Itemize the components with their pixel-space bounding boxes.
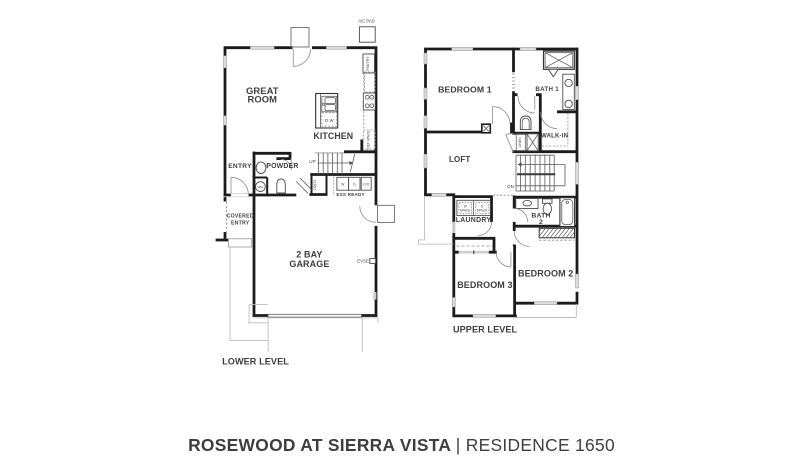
svg-text:LINEN: LINEN [518, 137, 522, 148]
svg-text:UPPER LEVEL: UPPER LEVEL [453, 325, 518, 335]
svg-text:SPACE: SPACE [460, 209, 471, 213]
svg-text:ENTRY: ENTRY [228, 163, 252, 170]
svg-text:D.W.: D.W. [325, 118, 334, 123]
svg-text:REF SPACE: REF SPACE [366, 131, 370, 149]
svg-text:DN: DN [507, 184, 514, 189]
svg-text:PANTRY: PANTRY [366, 56, 370, 71]
svg-text:BEDROOM 2: BEDROOM 2 [518, 268, 573, 278]
svg-text:SPACE: SPACE [477, 209, 488, 213]
svg-text:WALK-IN: WALK-IN [541, 133, 568, 139]
svg-text:A/C PAD: A/C PAD [358, 18, 374, 23]
svg-text:ROSEWOOD AT SIERRA VISTA | RES: ROSEWOOD AT SIERRA VISTA | RESIDENCE 165… [188, 435, 615, 455]
svg-text:W/H: W/H [257, 185, 263, 189]
svg-text:GARAGE: GARAGE [289, 259, 329, 269]
svg-text:COATS: COATS [313, 180, 317, 191]
svg-text:ENTRY: ENTRY [231, 220, 250, 226]
svg-text:EVSE: EVSE [357, 259, 369, 264]
svg-text:UP: UP [309, 159, 315, 164]
svg-text:C/O: C/O [363, 183, 369, 187]
svg-text:POWDER: POWDER [266, 163, 298, 170]
svg-text:ROOM: ROOM [248, 94, 278, 105]
svg-text:COVERED: COVERED [227, 213, 254, 219]
svg-text:LOWER LEVEL: LOWER LEVEL [222, 357, 289, 367]
svg-text:BEDROOM 1: BEDROOM 1 [438, 84, 492, 94]
svg-text:KITCHEN: KITCHEN [313, 131, 353, 141]
svg-text:2: 2 [539, 219, 543, 226]
svg-text:LAUNDRY: LAUNDRY [456, 217, 492, 224]
svg-text:ESS READY: ESS READY [336, 192, 364, 197]
svg-text:LOFT: LOFT [449, 155, 470, 164]
svg-text:BEDROOM 3: BEDROOM 3 [457, 280, 512, 290]
svg-text:BATH 1: BATH 1 [535, 86, 559, 93]
